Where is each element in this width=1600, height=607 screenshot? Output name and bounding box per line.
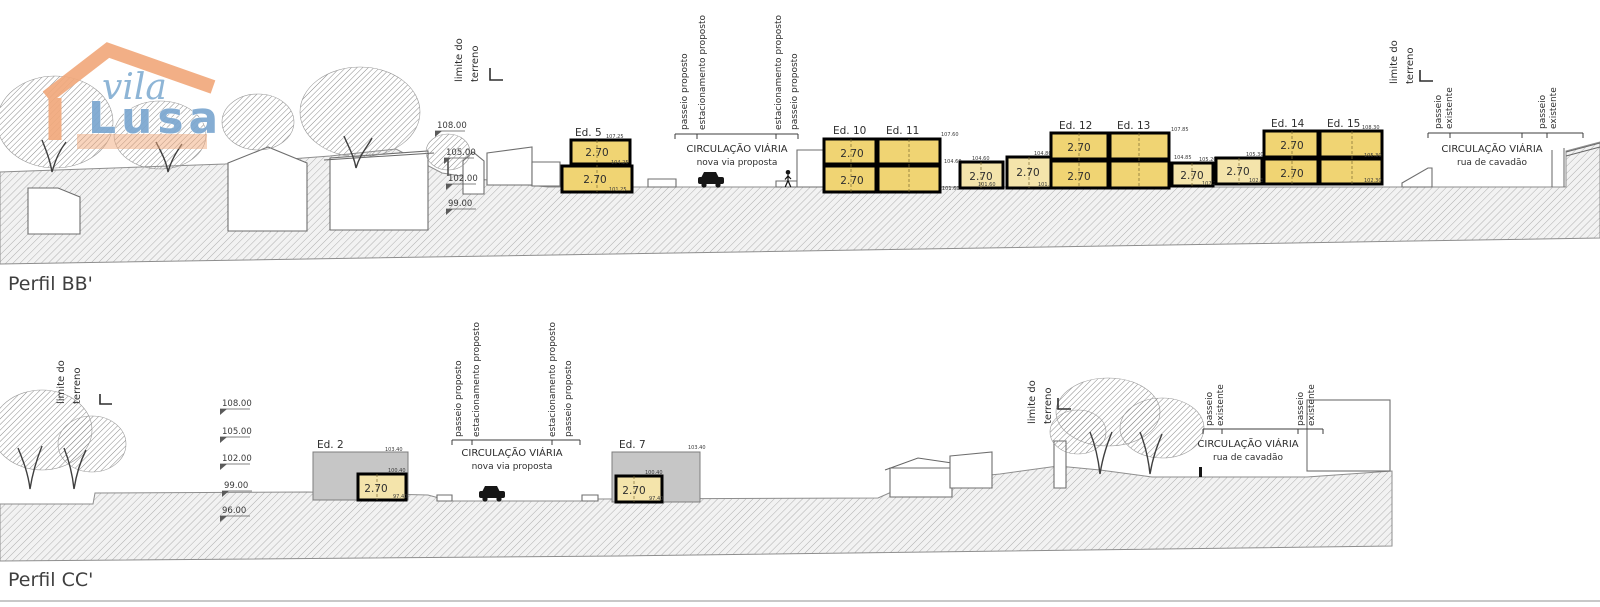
infill-unit-2: 2.70 104.80 101.80 — [1007, 151, 1056, 188]
new-road-annotation-bb: passeio proposto estacionamento proposto… — [675, 14, 800, 187]
level-mark: 107.85 — [1171, 127, 1189, 133]
passeio-existente-label: passeio — [1538, 94, 1548, 129]
level-mark: 101.60 — [978, 182, 996, 188]
building-label: Ed. 10 — [833, 125, 866, 137]
building-ed10-ed11: Ed. 10 Ed. 11 2.70 2.70 107.60 104.60 10… — [824, 125, 962, 192]
limite-terreno-label: terreno — [1405, 47, 1416, 84]
profile-bb-section: 108.00 105.00 102.00 99.00 limite do ter… — [0, 14, 1600, 295]
logo-word-lusa: Lusa — [88, 93, 223, 144]
profile-cc-title: Perfil CC' — [8, 569, 93, 591]
building-ed2: Ed. 2 2.70 103.40 100.40 97.40 — [313, 439, 408, 500]
building-ed7: Ed. 7 2.70 103.40 100.40 97.40 — [612, 439, 706, 502]
floor-height-label: 2.70 — [840, 175, 863, 187]
existing-road-annotation-bb: passeio existente passeio existente CIRC… — [1428, 87, 1583, 168]
passeio-existente-label: existente — [1216, 384, 1226, 426]
limite-terreno-label: terreno — [1043, 387, 1054, 424]
level-mark: 101.25 — [609, 187, 627, 193]
estacionamento-proposto-label: estacionamento proposto — [774, 14, 784, 130]
passeio-existente-label: passeio — [1296, 391, 1306, 426]
limite-terreno-label: limite do — [1389, 40, 1400, 84]
building-ed5: Ed. 5 2.70 2.70 107.25 104.25 101.25 — [562, 127, 632, 193]
building-label: Ed. 13 — [1117, 120, 1150, 132]
estacionamento-proposto-label: estacionamento proposto — [548, 321, 558, 437]
level-mark: 108.30 — [1362, 125, 1380, 131]
elevation-label: 108.00 — [437, 121, 467, 131]
elevation-label: 102.00 — [222, 454, 252, 464]
limite-terreno-label: limite do — [454, 38, 465, 82]
site-boundary-right-bb: limite do terreno — [1389, 40, 1433, 84]
limite-terreno-label: terreno — [470, 45, 481, 82]
elevation-label: 99.00 — [448, 199, 472, 209]
floor-height-label: 2.70 — [1067, 142, 1090, 154]
level-mark: 105.30 — [1364, 153, 1382, 159]
level-mark: 101.60 — [942, 186, 960, 192]
floor-height-label: 2.70 — [1067, 171, 1090, 183]
building-label: Ed. 5 — [575, 127, 602, 139]
floor-height-label: 2.70 — [1016, 167, 1039, 179]
elevation-label: 96.00 — [222, 506, 246, 516]
road-name-label: CIRCULAÇÃO VIÁRIA — [1197, 437, 1298, 450]
level-mark: 97.40 — [649, 496, 663, 502]
level-mark: 100.40 — [388, 468, 406, 474]
level-mark: 104.60 — [972, 156, 990, 162]
building-ed12-ed13: Ed. 12 Ed. 13 2.70 2.70 107.85 104.85 10… — [1051, 120, 1192, 189]
passeio-existente-label: existente — [1445, 87, 1455, 129]
car-icon — [479, 486, 505, 502]
passeio-existente-label: existente — [1549, 87, 1559, 129]
infill-unit-4: 2.70 105.30 102.30 — [1216, 152, 1267, 184]
site-boundary-left-cc: limite do terreno — [56, 360, 112, 404]
drawing-canvas: 108.00 105.00 102.00 99.00 limite do ter… — [0, 0, 1600, 607]
floor-height-label: 2.70 — [1180, 170, 1203, 182]
site-sections-sheet: 108.00 105.00 102.00 99.00 limite do ter… — [0, 0, 1600, 607]
floor-height-label: 2.70 — [840, 148, 863, 160]
building-label: Ed. 12 — [1059, 120, 1092, 132]
elevation-label: 105.00 — [446, 148, 476, 158]
road-subtitle-label: nova via proposta — [472, 462, 553, 472]
floor-height-label: 2.70 — [1280, 168, 1303, 180]
building-label: Ed. 15 — [1327, 118, 1360, 130]
level-mark: 104.80 — [1034, 151, 1052, 157]
infill-unit-3: 2.70 105.20 102.20 — [1172, 157, 1220, 187]
level-mark: 107.60 — [941, 132, 959, 138]
level-mark: 104.25 — [611, 160, 629, 166]
building-label: Ed. 2 — [317, 439, 344, 451]
passeio-proposto-label: passeio proposto — [680, 53, 690, 130]
floor-height-label: 2.70 — [1226, 166, 1249, 178]
profile-bb-title: Perfil BB' — [8, 273, 93, 295]
level-mark: 103.40 — [688, 445, 706, 451]
limite-terreno-label: limite do — [56, 360, 67, 404]
road-name-label: CIRCULAÇÃO VIÁRIA — [1441, 142, 1542, 155]
level-mark: 97.40 — [393, 494, 407, 500]
elevation-label: 99.00 — [224, 481, 248, 491]
site-boundary-left-bb: limite do terreno — [454, 38, 503, 82]
limite-terreno-label: terreno — [72, 367, 83, 404]
floor-height-label: 2.70 — [622, 485, 645, 497]
building-label: Ed. 7 — [619, 439, 646, 451]
building-ed14-ed15: Ed. 14 Ed. 15 2.70 2.70 108.30 105.30 10… — [1264, 118, 1382, 184]
level-mark: 102.30 — [1364, 178, 1382, 184]
floor-height-label: 2.70 — [1280, 140, 1303, 152]
passeio-existente-label: passeio — [1434, 94, 1444, 129]
infill-unit-1: 2.70 104.60 101.60 — [960, 156, 1003, 188]
road-subtitle-label: rua de cavadão — [1457, 158, 1527, 168]
passeio-existente-label: passeio — [1205, 391, 1215, 426]
estacionamento-proposto-label: estacionamento proposto — [472, 321, 482, 437]
new-road-annotation-cc: passeio proposto estacionamento proposto… — [437, 321, 598, 501]
level-mark: 107.25 — [606, 134, 624, 140]
boundary-corner-mark — [490, 68, 503, 80]
level-mark: 105.20 — [1199, 157, 1217, 163]
boundary-corner-mark — [100, 394, 112, 404]
car-icon — [698, 172, 724, 188]
level-mark: 104.85 — [1174, 155, 1192, 161]
road-subtitle-label: nova via proposta — [697, 158, 778, 168]
existing-platform — [1307, 400, 1390, 471]
building-label: Ed. 11 — [886, 125, 919, 137]
passeio-proposto-label: passeio proposto — [454, 360, 464, 437]
road-name-label: CIRCULAÇÃO VIÁRIA — [461, 446, 562, 459]
estacionamento-proposto-label: estacionamento proposto — [698, 14, 708, 130]
road-subtitle-label: rua de cavadão — [1213, 453, 1283, 463]
elevation-label: 105.00 — [222, 427, 252, 437]
limite-terreno-label: limite do — [1027, 380, 1038, 424]
profile-cc-section: limite do terreno 108.00 105.00 102.00 9… — [0, 321, 1600, 601]
level-mark: 103.40 — [385, 447, 403, 453]
passeio-proposto-label: passeio proposto — [790, 53, 800, 130]
building-label: Ed. 14 — [1271, 118, 1305, 130]
level-mark: 100.40 — [645, 470, 663, 476]
floor-height-label: 2.70 — [585, 147, 608, 159]
level-mark: 105.30 — [1246, 152, 1264, 158]
bollard-icon — [1199, 467, 1202, 477]
floor-height-label: 2.70 — [583, 174, 606, 186]
floor-height-label: 2.70 — [364, 483, 387, 495]
passeio-existente-label: existente — [1307, 384, 1317, 426]
elevation-label: 102.00 — [448, 174, 478, 184]
passeio-proposto-label: passeio proposto — [564, 360, 574, 437]
boundary-corner-mark — [1420, 70, 1433, 81]
road-name-label: CIRCULAÇÃO VIÁRIA — [686, 142, 787, 155]
elevation-label: 108.00 — [222, 399, 252, 409]
existing-road-annotation-cc: passeio existente passeio existente CIRC… — [1197, 384, 1323, 463]
